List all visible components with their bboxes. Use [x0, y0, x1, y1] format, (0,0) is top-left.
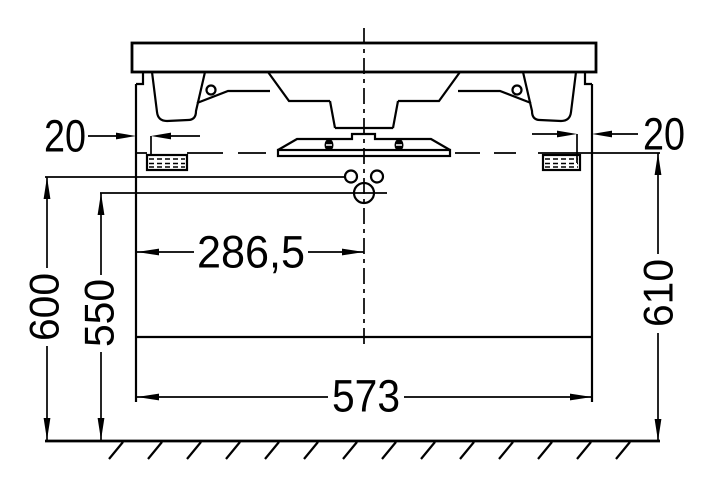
dim-600-arrow-up	[44, 177, 51, 199]
dim-right-20-label: 20	[643, 109, 685, 160]
technical-drawing-page: 20 20 286,5 573 600 550 61	[0, 0, 720, 493]
dim-left-20-arrow-right	[116, 133, 136, 140]
fixing-holes-and-outlet	[45, 171, 387, 204]
dim-600-label: 600	[21, 273, 68, 341]
cabinet-left-notch	[136, 72, 143, 84]
ground-hatching	[109, 442, 630, 459]
dim-left-20-arrow-left	[151, 133, 171, 140]
dim-286-5: 286,5	[137, 227, 364, 278]
basin-right-hole	[513, 86, 522, 95]
dim-550: 550	[76, 193, 123, 440]
dim-600-arrow-down	[44, 418, 51, 440]
dim-550-label: 550	[76, 279, 123, 347]
dim-610: 610	[635, 153, 682, 441]
dim-573-label: 573	[332, 371, 400, 422]
dim-573-arrow-left	[137, 394, 159, 401]
dim-left-20-label: 20	[44, 111, 86, 162]
wall-rail-right-hatch	[545, 159, 578, 167]
dim-286-5-arrow-left	[137, 249, 159, 256]
dim-286-5-arrow-right	[342, 249, 364, 256]
basin-right-foot	[523, 72, 576, 121]
basin-left-foot	[152, 72, 205, 121]
dim-left-20: 20	[44, 111, 200, 162]
dim-600: 600	[21, 177, 68, 440]
dim-550-arrow-up	[98, 193, 105, 215]
basin-left-hole	[207, 86, 216, 95]
wall-rail-left-hatch	[149, 159, 185, 167]
dim-right-20-arrow-right	[557, 131, 577, 138]
vanity-technical-drawing: 20 20 286,5 573 600 550 61	[0, 0, 720, 493]
fixing-hole-left	[345, 171, 357, 183]
wall-rail-right	[543, 155, 580, 170]
cabinet-right-notch	[585, 72, 592, 84]
dim-286-5-label: 286,5	[197, 227, 305, 278]
dim-610-label: 610	[635, 259, 682, 327]
dim-573-arrow-right	[570, 394, 592, 401]
dim-right-20-arrow-left	[592, 131, 612, 138]
ground	[45, 441, 660, 459]
dim-573: 573	[137, 371, 592, 422]
dim-550-arrow-down	[98, 418, 105, 440]
dim-610-arrow-down	[655, 419, 662, 441]
wall-rail-left	[147, 155, 187, 170]
fixing-hole-right	[371, 171, 383, 183]
